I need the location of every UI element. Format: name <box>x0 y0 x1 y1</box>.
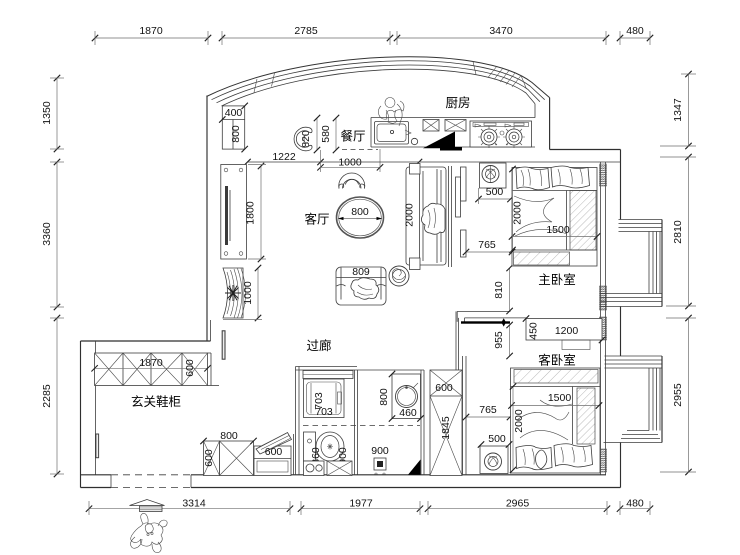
svg-text:3360: 3360 <box>41 222 53 246</box>
svg-text:1000: 1000 <box>242 281 254 305</box>
svg-text:1977: 1977 <box>349 497 373 509</box>
svg-text:800: 800 <box>378 388 390 406</box>
svg-text:480: 480 <box>626 497 644 509</box>
svg-text:580: 580 <box>320 125 332 143</box>
svg-text:2000: 2000 <box>512 201 524 225</box>
svg-text:900: 900 <box>371 445 389 457</box>
svg-text:500: 500 <box>488 433 506 445</box>
svg-text:600: 600 <box>435 382 453 394</box>
svg-text:703: 703 <box>315 406 333 418</box>
svg-text:2955: 2955 <box>672 383 684 407</box>
svg-text:3314: 3314 <box>182 497 206 509</box>
svg-text:765: 765 <box>478 239 496 251</box>
svg-text:2000: 2000 <box>513 409 525 433</box>
svg-text:810: 810 <box>493 281 505 299</box>
svg-text:1347: 1347 <box>672 98 684 122</box>
svg-text:主卧室: 主卧室 <box>538 272 576 287</box>
svg-text:2965: 2965 <box>506 497 530 509</box>
svg-text:480: 480 <box>626 25 644 37</box>
svg-text:2285: 2285 <box>41 384 53 408</box>
svg-text:1222: 1222 <box>272 151 296 163</box>
svg-text:450: 450 <box>528 322 540 340</box>
svg-text:1845: 1845 <box>440 416 452 440</box>
svg-text:500: 500 <box>486 186 504 198</box>
svg-text:800: 800 <box>230 125 242 143</box>
svg-text:1870: 1870 <box>139 25 163 37</box>
svg-text:餐厅: 餐厅 <box>340 129 365 144</box>
svg-text:1350: 1350 <box>41 101 53 125</box>
svg-text:2785: 2785 <box>294 25 318 37</box>
svg-text:809: 809 <box>352 266 370 278</box>
svg-text:玄关鞋柜: 玄关鞋柜 <box>131 394 181 409</box>
svg-text:过廊: 过廊 <box>306 338 331 353</box>
svg-text:1870: 1870 <box>139 357 163 369</box>
svg-text:400: 400 <box>225 107 243 119</box>
svg-text:2810: 2810 <box>672 220 684 244</box>
svg-text:800: 800 <box>220 430 238 442</box>
svg-text:1500: 1500 <box>546 224 570 236</box>
svg-text:3470: 3470 <box>489 25 513 37</box>
svg-text:客厅: 客厅 <box>304 212 329 227</box>
svg-text:765: 765 <box>479 404 497 416</box>
svg-text:800: 800 <box>351 206 369 218</box>
svg-text:1200: 1200 <box>555 325 579 337</box>
svg-text:600: 600 <box>184 359 196 377</box>
svg-text:460: 460 <box>399 407 417 419</box>
svg-text:1800: 1800 <box>245 201 257 225</box>
svg-text:客卧室: 客卧室 <box>538 353 576 368</box>
svg-text:955: 955 <box>493 331 505 349</box>
svg-text:1500: 1500 <box>548 392 572 404</box>
svg-text:2000: 2000 <box>404 203 416 227</box>
svg-text:600: 600 <box>203 449 215 467</box>
svg-text:600: 600 <box>265 446 283 458</box>
svg-text:厨房: 厨房 <box>445 95 470 110</box>
